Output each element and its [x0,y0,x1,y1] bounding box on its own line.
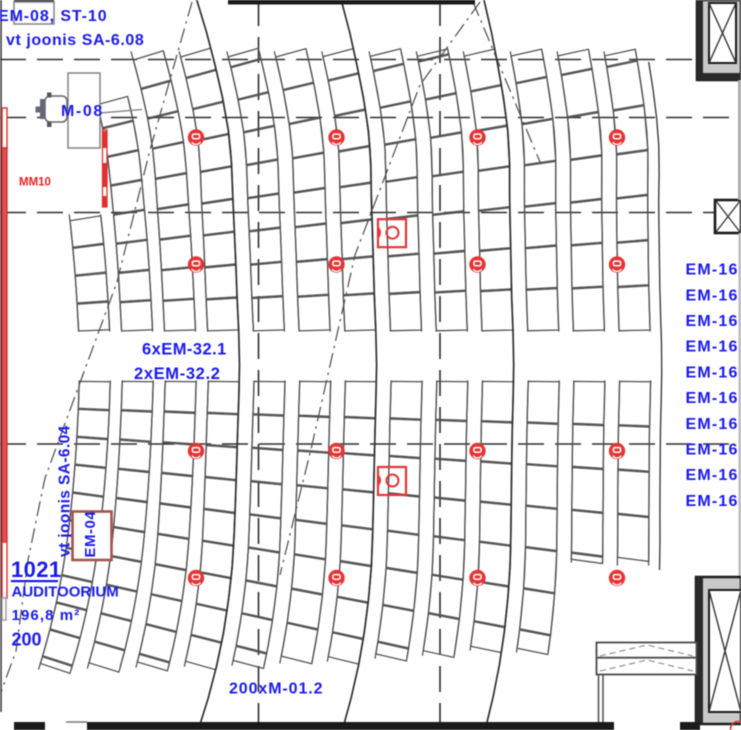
svg-text:200xM-01.2: 200xM-01.2 [229,681,323,698]
svg-text:EM-16: EM-16 [686,313,739,330]
svg-text:vt joonis SA-6.08: vt joonis SA-6.08 [6,32,144,49]
svg-text:EM-08, ST-10: EM-08, ST-10 [0,8,108,25]
svg-text:EM-16: EM-16 [686,262,739,279]
svg-text:EM-16: EM-16 [686,390,739,407]
svg-text:EM-16: EM-16 [686,364,739,381]
svg-text:EM-16: EM-16 [686,442,739,459]
svg-text:200: 200 [12,630,42,650]
svg-text:1021: 1021 [11,557,62,582]
svg-text:M-08: M-08 [61,103,104,120]
svg-text:EM-16: EM-16 [686,339,739,356]
svg-text:EM-16: EM-16 [686,287,739,304]
svg-text:vt joonis SA-6.04: vt joonis SA-6.04 [57,425,74,557]
svg-text:AUDITOORIUM: AUDITOORIUM [12,584,119,601]
svg-text:6xEM-32.1: 6xEM-32.1 [142,341,227,359]
svg-text:EM-04: EM-04 [82,511,99,558]
svg-text:EM-16: EM-16 [686,493,739,510]
svg-text:EM-16: EM-16 [686,467,739,484]
svg-text:EM-16: EM-16 [686,416,739,433]
svg-text:196,8 m²: 196,8 m² [12,607,81,624]
svg-text:MM10: MM10 [19,177,51,189]
svg-text:2xEM-32.2: 2xEM-32.2 [134,365,221,383]
